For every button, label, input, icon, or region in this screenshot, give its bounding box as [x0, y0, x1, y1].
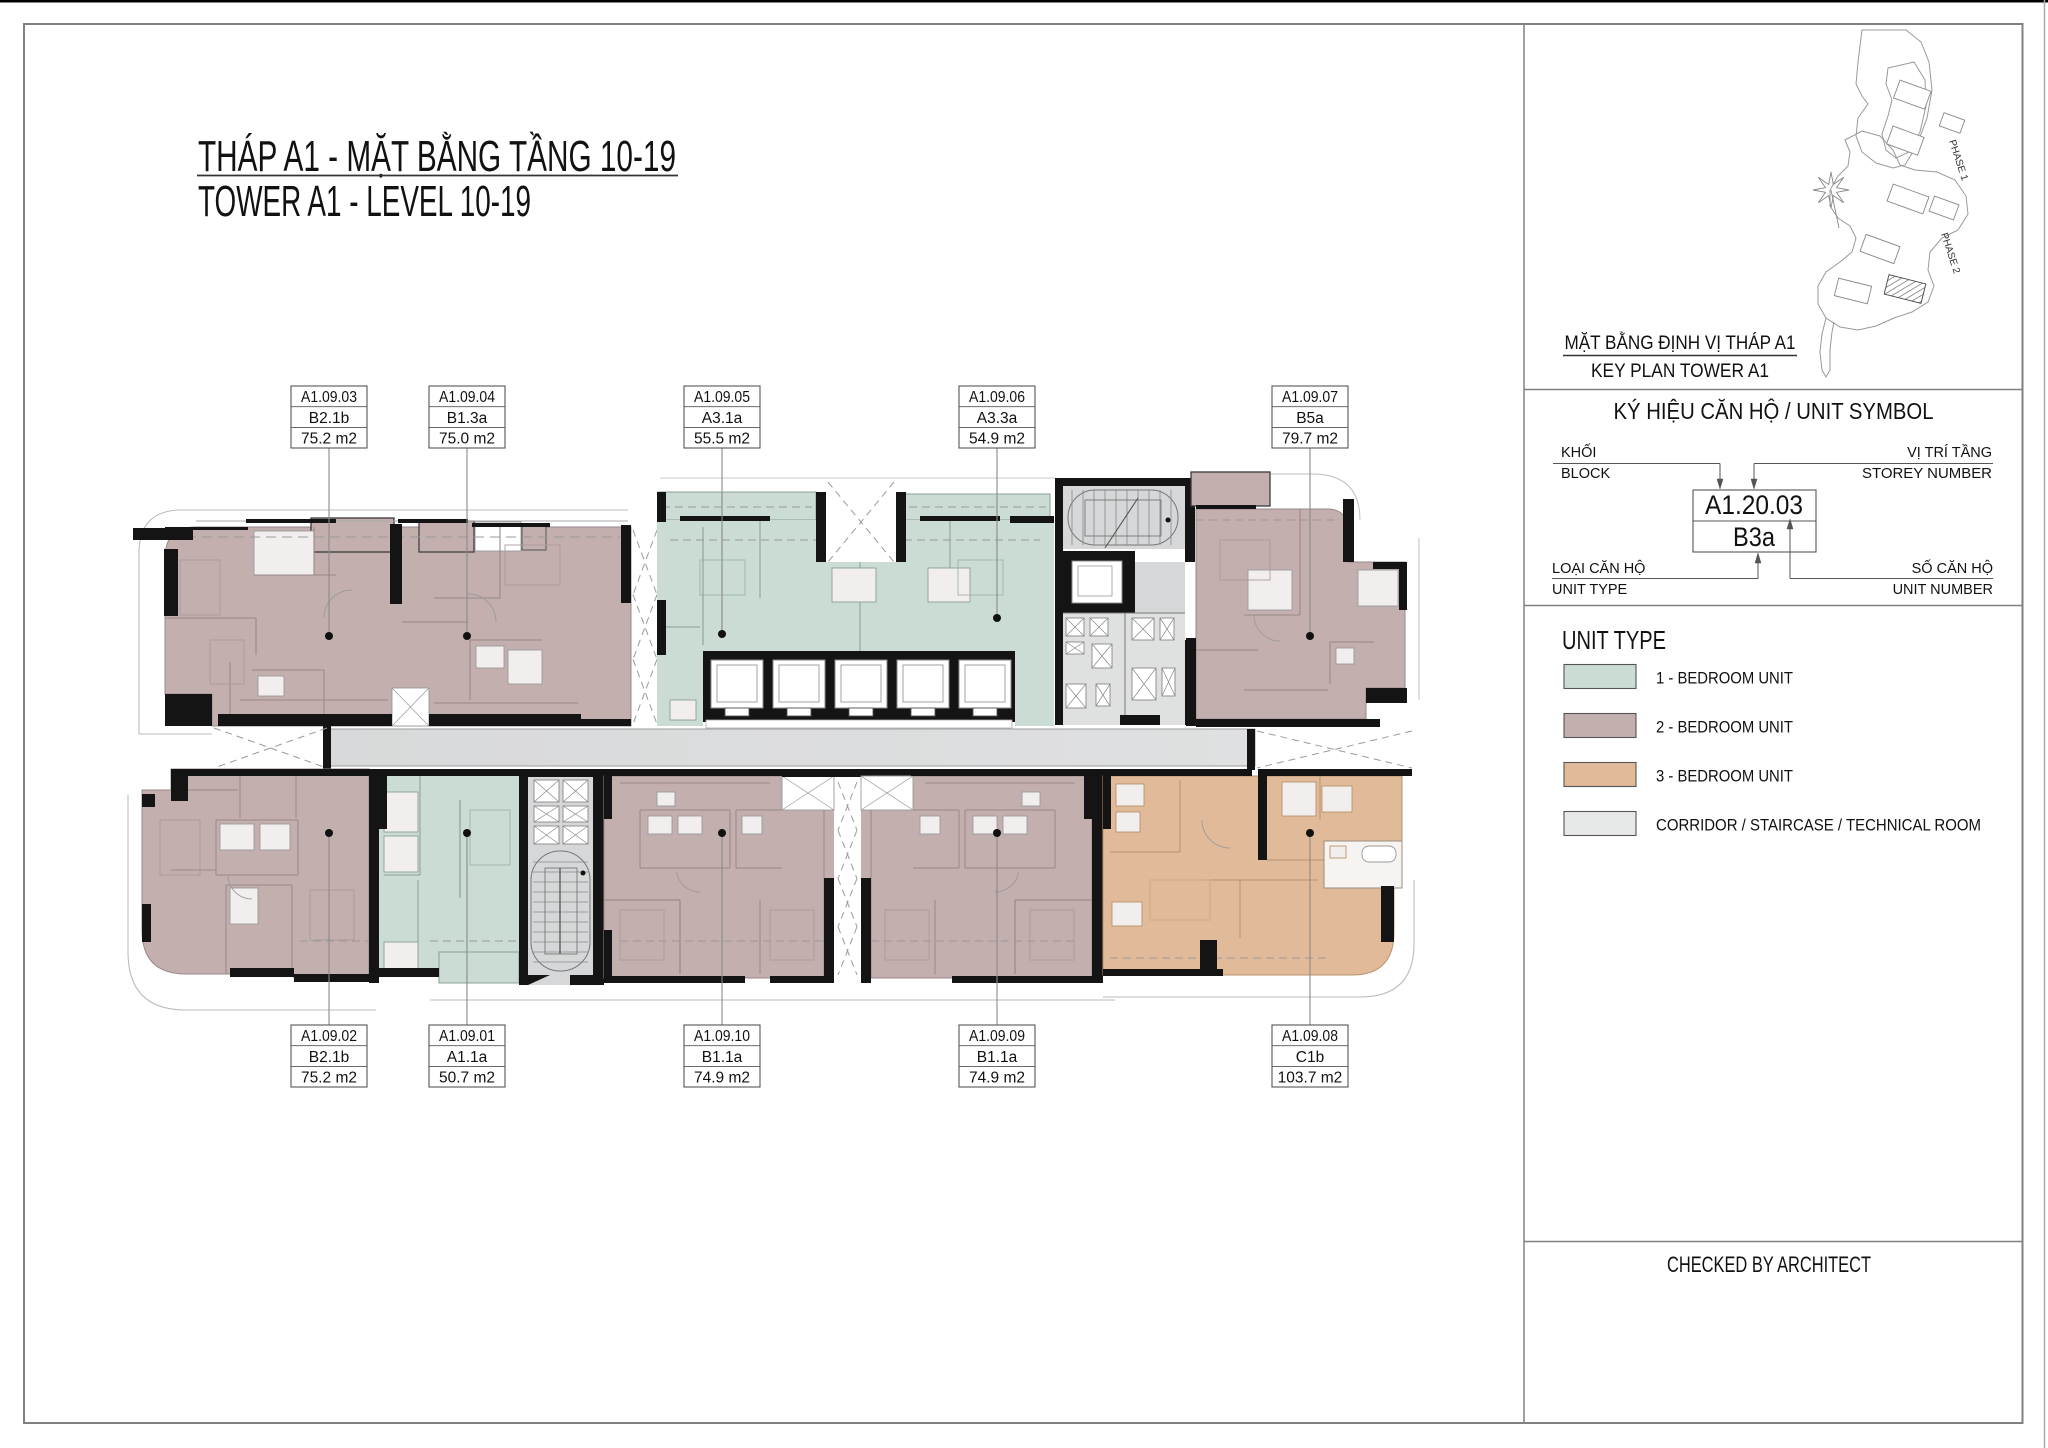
svg-text:74.9 m2: 74.9 m2 — [969, 1070, 1025, 1087]
svg-text:A1.09.03: A1.09.03 — [301, 389, 357, 406]
svg-text:MẶT BẰNG ĐỊNH VỊ THÁP A1: MẶT BẰNG ĐỊNH VỊ THÁP A1 — [1565, 332, 1796, 354]
svg-text:B1.3a: B1.3a — [447, 410, 488, 427]
svg-text:KHỐI: KHỐI — [1561, 443, 1596, 461]
svg-text:2 - BEDROOM UNIT: 2 - BEDROOM UNIT — [1656, 719, 1793, 737]
svg-text:CHECKED BY ARCHITECT: CHECKED BY ARCHITECT — [1667, 1252, 1871, 1277]
svg-text:74.9 m2: 74.9 m2 — [694, 1070, 750, 1087]
svg-text:VỊ TRÍ TẦNG: VỊ TRÍ TẦNG — [1907, 444, 1992, 461]
svg-text:UNIT TYPE: UNIT TYPE — [1562, 625, 1666, 655]
svg-text:54.9 m2: 54.9 m2 — [969, 431, 1025, 448]
svg-text:B2.1b: B2.1b — [309, 410, 350, 427]
svg-text:1 - BEDROOM UNIT: 1 - BEDROOM UNIT — [1656, 670, 1793, 688]
svg-text:B3a: B3a — [1733, 522, 1776, 552]
svg-text:TOWER A1 - LEVEL 10-19: TOWER A1 - LEVEL 10-19 — [198, 177, 531, 226]
svg-text:A3.1a: A3.1a — [702, 410, 743, 427]
svg-text:A1.09.06: A1.09.06 — [969, 389, 1025, 406]
svg-text:UNIT TYPE: UNIT TYPE — [1552, 582, 1628, 598]
svg-text:75.2 m2: 75.2 m2 — [301, 431, 357, 448]
svg-text:C1b: C1b — [1296, 1049, 1324, 1066]
svg-text:A1.09.05: A1.09.05 — [694, 389, 750, 406]
svg-text:B2.1b: B2.1b — [309, 1049, 350, 1066]
svg-text:A1.09.07: A1.09.07 — [1282, 389, 1338, 406]
svg-text:KÝ HIỆU CĂN HỘ / UNIT SYMBOL: KÝ HIỆU CĂN HỘ / UNIT SYMBOL — [1614, 397, 1934, 424]
svg-text:STOREY NUMBER: STOREY NUMBER — [1862, 466, 1992, 482]
svg-text:75.2 m2: 75.2 m2 — [301, 1070, 357, 1087]
svg-text:75.0 m2: 75.0 m2 — [439, 431, 495, 448]
svg-text:A1.09.02: A1.09.02 — [301, 1028, 357, 1045]
svg-text:LOẠI CĂN HỘ: LOẠI CĂN HỘ — [1552, 560, 1645, 577]
svg-text:A1.09.01: A1.09.01 — [439, 1028, 495, 1045]
svg-text:A1.09.09: A1.09.09 — [969, 1028, 1025, 1045]
svg-text:SỐ CĂN HỘ: SỐ CĂN HỘ — [1912, 559, 1993, 577]
svg-text:A3.3a: A3.3a — [977, 410, 1018, 427]
svg-text:55.5 m2: 55.5 m2 — [694, 431, 750, 448]
svg-text:A1.09.04: A1.09.04 — [439, 389, 495, 406]
svg-text:B5a: B5a — [1296, 410, 1324, 427]
svg-text:A1.20.03: A1.20.03 — [1705, 490, 1803, 520]
svg-text:B1.1a: B1.1a — [977, 1049, 1018, 1066]
svg-text:UNIT NUMBER: UNIT NUMBER — [1893, 582, 1993, 598]
svg-text:3 - BEDROOM UNIT: 3 - BEDROOM UNIT — [1656, 768, 1793, 786]
svg-text:A1.09.10: A1.09.10 — [694, 1028, 750, 1045]
svg-text:THÁP A1 - MẶT BẰNG TẦNG 10-19: THÁP A1 - MẶT BẰNG TẦNG 10-19 — [198, 131, 676, 181]
svg-text:CORRIDOR / STAIRCASE / TECHNIC: CORRIDOR / STAIRCASE / TECHNICAL ROOM — [1656, 817, 1981, 835]
svg-text:KEY PLAN TOWER A1: KEY PLAN TOWER A1 — [1591, 361, 1769, 382]
svg-text:79.7 m2: 79.7 m2 — [1282, 431, 1338, 448]
svg-text:103.7 m2: 103.7 m2 — [1278, 1070, 1343, 1087]
svg-text:A1.09.08: A1.09.08 — [1282, 1028, 1338, 1045]
svg-text:BLOCK: BLOCK — [1561, 466, 1610, 482]
svg-text:A1.1a: A1.1a — [447, 1049, 488, 1066]
svg-text:50.7 m2: 50.7 m2 — [439, 1070, 495, 1087]
svg-text:B1.1a: B1.1a — [702, 1049, 743, 1066]
